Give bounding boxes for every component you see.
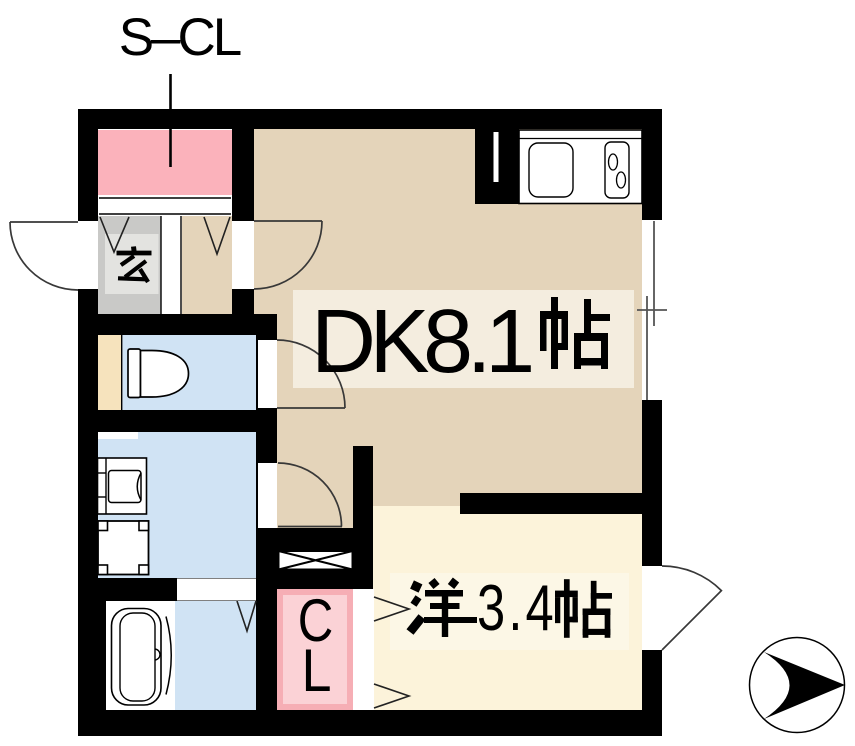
- svg-text:DK8.1: DK8.1: [311, 292, 531, 392]
- svg-text:3.4: 3.4: [477, 572, 557, 644]
- svg-text:S–CL: S–CL: [119, 8, 241, 67]
- svg-text:L: L: [301, 637, 331, 704]
